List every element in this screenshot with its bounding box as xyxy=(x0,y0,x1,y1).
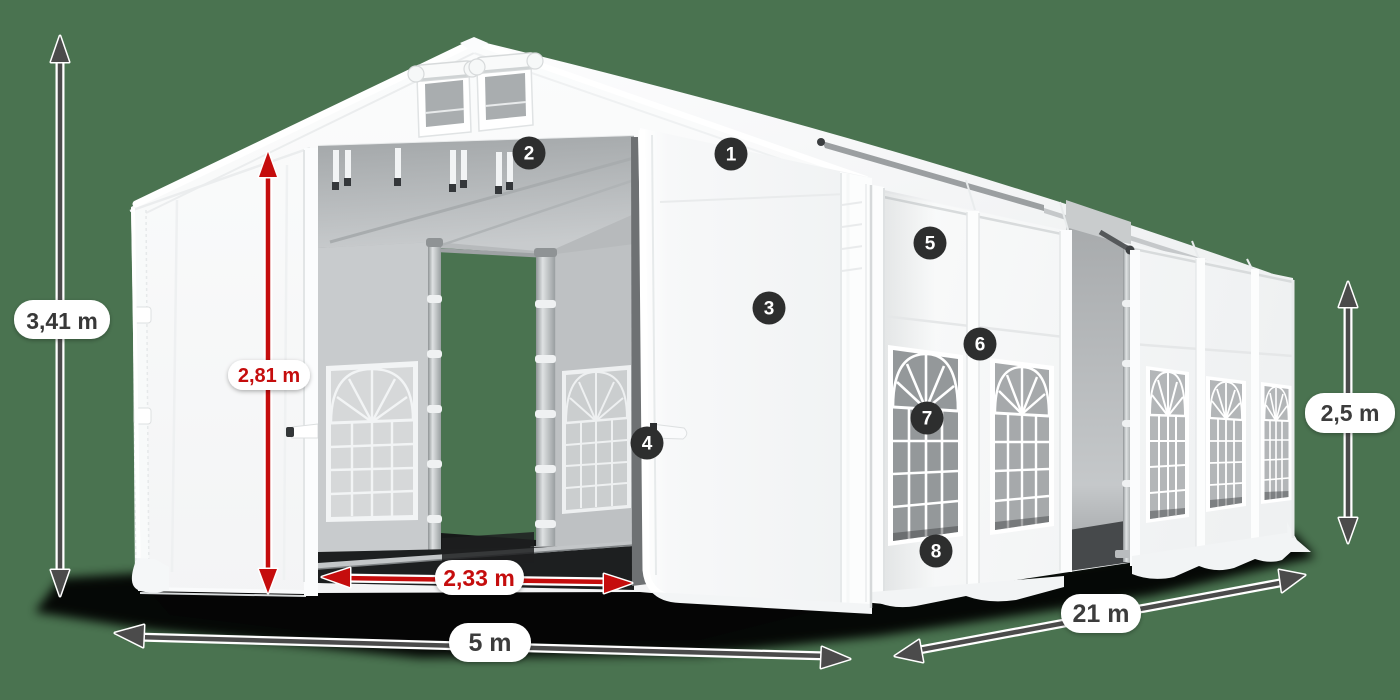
svg-text:6: 6 xyxy=(975,335,986,356)
svg-text:8: 8 xyxy=(931,542,942,563)
svg-text:5: 5 xyxy=(925,234,936,255)
svg-text:1: 1 xyxy=(726,145,737,166)
svg-text:3: 3 xyxy=(764,299,775,320)
svg-text:4: 4 xyxy=(642,434,653,455)
svg-text:2,33 m: 2,33 m xyxy=(443,565,515,591)
svg-text:2,81 m: 2,81 m xyxy=(238,365,300,387)
svg-text:3,41 m: 3,41 m xyxy=(26,308,98,334)
svg-text:21 m: 21 m xyxy=(1073,600,1130,628)
svg-text:7: 7 xyxy=(922,409,933,430)
svg-text:2,5 m: 2,5 m xyxy=(1321,400,1380,426)
svg-text:5 m: 5 m xyxy=(468,629,511,657)
svg-text:2: 2 xyxy=(524,144,535,165)
